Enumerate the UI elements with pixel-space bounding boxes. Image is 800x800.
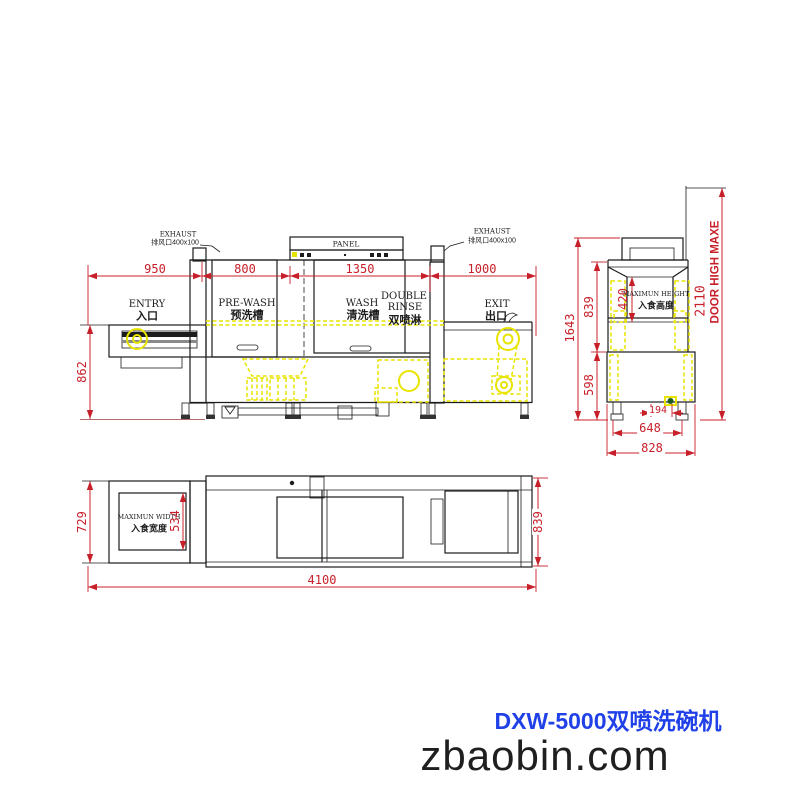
rinse-label-en1: DOUBLE <box>381 292 427 302</box>
dim-2110: 2110 <box>695 285 708 316</box>
dim-839-plan: 839 <box>532 509 544 535</box>
panel-label: PANEL <box>333 240 360 248</box>
exit-label-zh: 出口 <box>485 312 507 323</box>
dim-800: 800 <box>234 263 256 275</box>
max-height-label-en: MAXIMUN HEIGHT <box>623 291 690 298</box>
dim-420: 420 <box>617 288 629 310</box>
dim-648: 648 <box>637 422 663 434</box>
plan-wash-chamber <box>277 497 403 558</box>
dim-729: 729 <box>76 511 88 533</box>
dim-194: 194 <box>647 406 669 416</box>
rinse-label-en2: RINSE <box>388 303 422 313</box>
dim-1000: 1000 <box>468 263 497 275</box>
wash-label-en: WASH <box>346 299 379 309</box>
exhaust-left-label-zh: 排风口400x100 <box>151 240 199 247</box>
rinse-label-zh: 双喷淋 <box>389 316 422 327</box>
pump-compartment <box>378 360 428 402</box>
product-model-title: DXW-5000双喷洗碗机 <box>494 702 721 736</box>
lower-body <box>607 352 695 402</box>
exhaust-right-label-en: EXHAUST <box>474 229 511 236</box>
pump-icon <box>399 371 419 391</box>
dim-839-end: 839 <box>583 296 595 318</box>
entry-label-zh: 入口 <box>136 312 158 323</box>
drain-piping <box>222 402 389 419</box>
entry-label-en: ENTRY <box>129 300 166 310</box>
drawing-linework <box>0 0 800 800</box>
dim-598: 598 <box>583 374 595 396</box>
exit-compartment <box>444 359 527 401</box>
max-height-label-zh: 入食高度 <box>638 302 674 311</box>
dim-862: 862 <box>76 361 88 383</box>
door-high-note: DOOR HIGH MAXE <box>710 221 722 324</box>
dim-1350: 1350 <box>346 263 375 275</box>
exhaust-right-label-zh: 排风口400x100 <box>468 238 516 245</box>
max-width-label-zh: 入食宽度 <box>131 525 167 534</box>
prewash-label-en: PRE-WASH <box>218 299 275 309</box>
drive-belt-assembly <box>492 328 520 394</box>
exit-column <box>430 262 444 403</box>
exhaust-left-label-en: EXHAUST <box>160 232 197 239</box>
website-watermark: zbaobin.com <box>420 732 669 780</box>
dishwasher-technical-drawing: EXHAUST 排风口400x100 EXHAUST 排风口400x100 PA… <box>0 0 800 800</box>
exit-label-en: EXIT <box>484 300 509 310</box>
wash-tank-hopper <box>243 359 308 376</box>
wash-label-zh: 清洗槽 <box>347 311 380 322</box>
panel-indicator-highlight <box>292 252 297 257</box>
plan-exit-section <box>445 491 518 553</box>
dim-828: 828 <box>639 442 665 454</box>
exhaust-duct-left <box>193 248 206 261</box>
exhaust-right-leader <box>444 242 464 251</box>
dim-950: 950 <box>144 263 166 275</box>
entry-column <box>190 260 206 403</box>
machine-legs <box>181 403 529 419</box>
exit-table <box>444 313 532 403</box>
dim-534: 534 <box>169 510 181 532</box>
dim-1643: 1643 <box>564 314 576 343</box>
drain-fitting <box>665 397 676 405</box>
dim-4100: 4100 <box>306 574 339 586</box>
prewash-label-zh: 预洗槽 <box>231 311 264 322</box>
